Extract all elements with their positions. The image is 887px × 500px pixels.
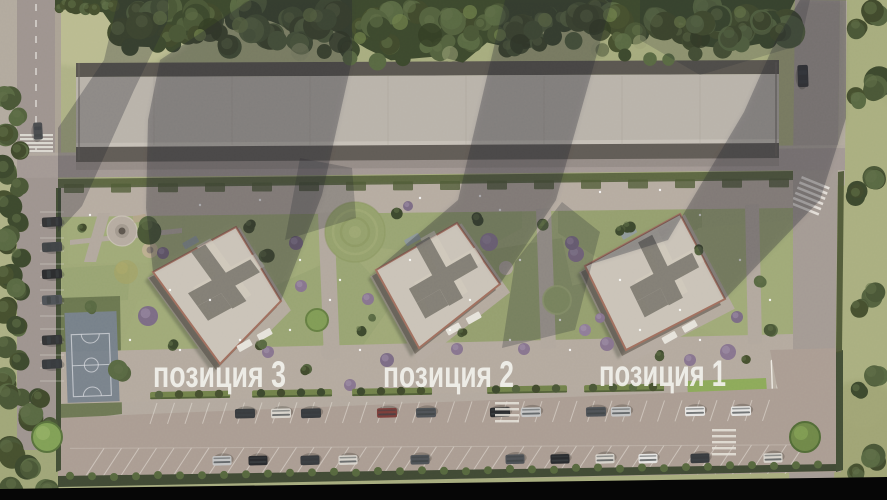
svg-text:позиция 1: позиция 1	[599, 353, 726, 394]
svg-text:позиция 3: позиция 3	[153, 354, 286, 395]
svg-text:позиция 2: позиция 2	[383, 354, 514, 395]
